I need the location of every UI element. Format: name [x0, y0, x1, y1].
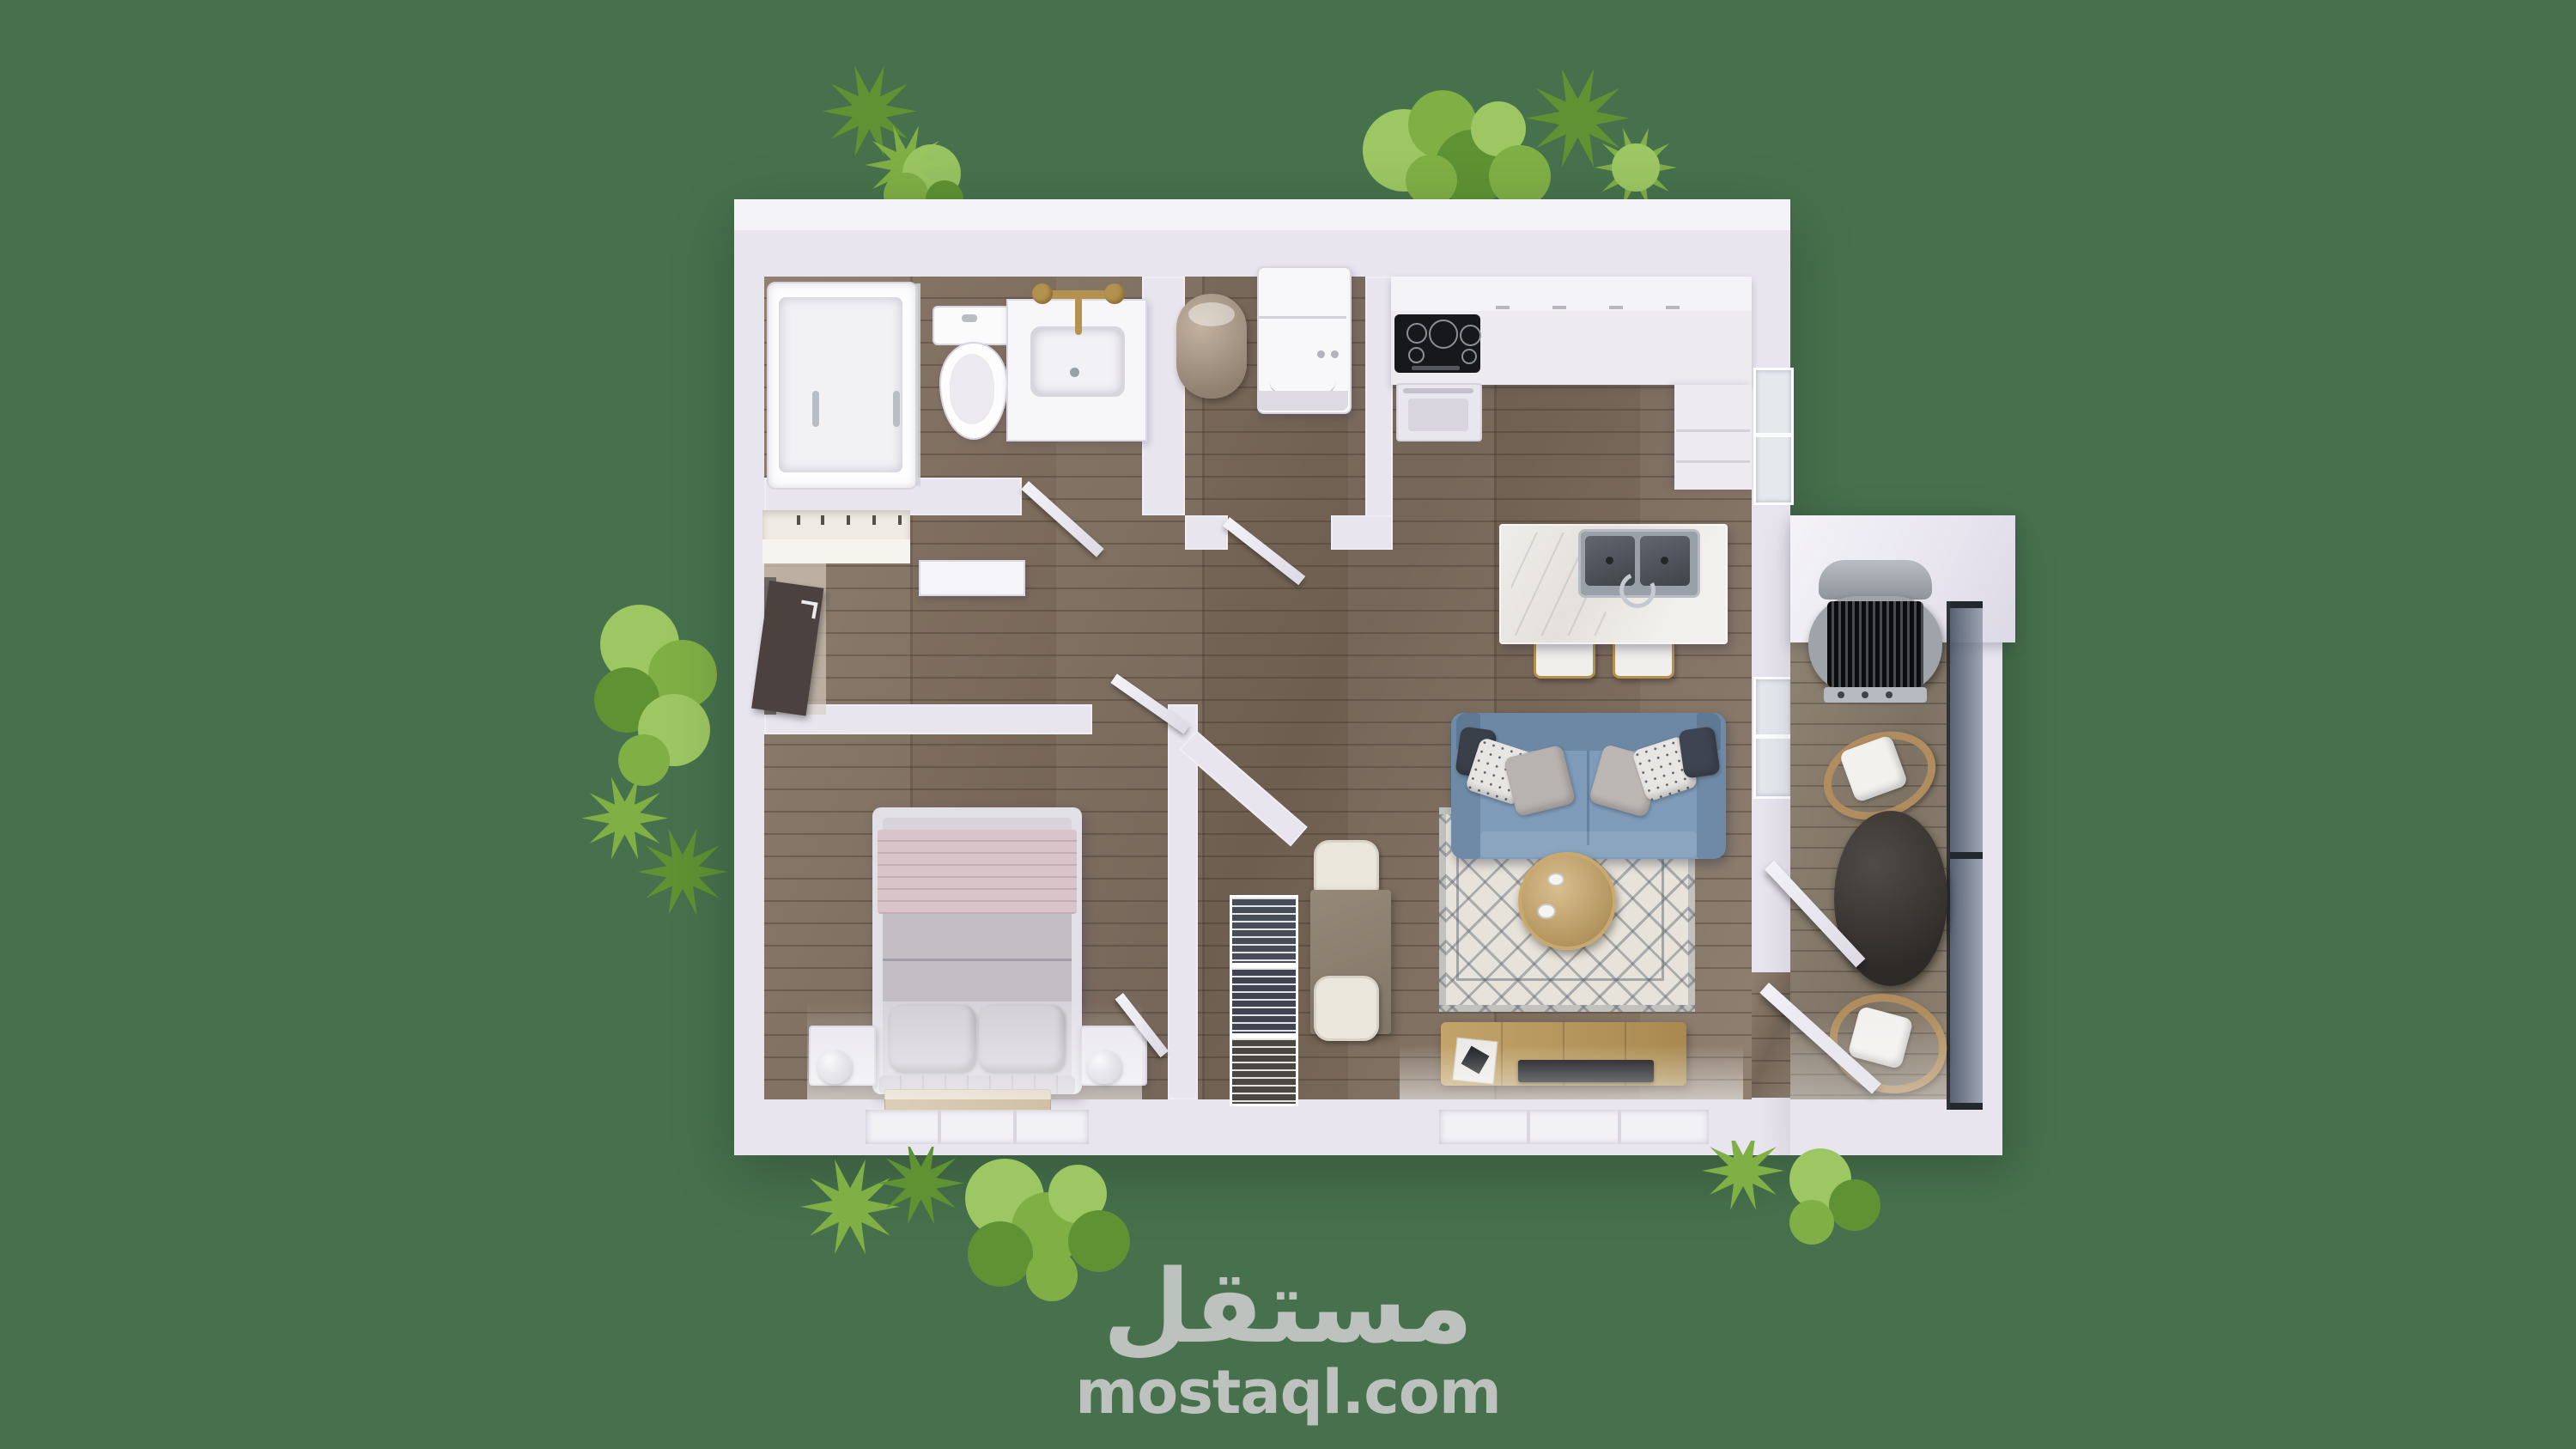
mostaql-logo-arabic: مستقل — [1103, 1256, 1473, 1357]
washer-knob-icon — [1317, 350, 1325, 358]
coat-hook-icon — [847, 515, 850, 525]
cabinet-handle-icon — [1666, 306, 1680, 309]
bbq-knob-icon — [1886, 691, 1893, 698]
wire-basket-unit — [1230, 895, 1298, 965]
window-mullion — [1013, 1110, 1017, 1144]
washer-base — [1257, 391, 1348, 411]
tv — [1518, 1060, 1654, 1082]
oven-handle — [1403, 388, 1473, 393]
sink-drain-icon — [1606, 557, 1613, 564]
cooktop-burner-icon — [1460, 325, 1481, 346]
toilet-tank — [933, 306, 1012, 345]
cabinet-handle-icon — [1496, 306, 1510, 309]
water-heater-top — [1188, 302, 1235, 326]
coat-hook-icon — [898, 515, 902, 525]
wire-basket-unit — [1230, 1036, 1298, 1106]
wall-top-cap — [734, 199, 1790, 230]
cup-icon — [1547, 873, 1564, 886]
kitchen-upper-cabinets — [1391, 277, 1752, 311]
dining-chair — [1314, 976, 1379, 1041]
bathtub-basin — [779, 297, 902, 472]
bbq-grate — [1827, 601, 1923, 687]
railing-post — [1950, 601, 1983, 608]
round-coffee-table — [1518, 852, 1616, 950]
watermark: مستقل mostaql.com — [1030, 1256, 1546, 1445]
window — [866, 1110, 1089, 1144]
kitchen-counter-right — [1674, 385, 1752, 490]
tree-icon-top-right — [1352, 47, 1687, 223]
window — [1753, 368, 1794, 505]
oven-glass — [1408, 399, 1468, 431]
coat-hook-icon — [821, 515, 824, 525]
coat-nook-bench — [762, 539, 910, 563]
blue-sofa — [1451, 713, 1726, 859]
railing-post — [1950, 1103, 1983, 1110]
gold-faucet-handle — [1104, 283, 1125, 304]
cooktop-burner-icon — [1408, 347, 1425, 363]
glass-railing — [1947, 601, 1983, 1110]
toilet-seat — [950, 354, 994, 424]
coat-hook-icon — [797, 515, 800, 525]
sphere-lamp — [817, 1050, 852, 1084]
door-swing-arrow-icon — [799, 600, 817, 618]
floor-plan-render: مستقل mostaql.com — [0, 0, 2576, 1449]
bed-pillow — [979, 1005, 1065, 1072]
sink-drain-icon — [1070, 368, 1079, 377]
window-mullion — [938, 1110, 941, 1144]
gold-faucet-handle — [1032, 283, 1053, 304]
bbq-control-panel — [1824, 687, 1927, 703]
cooktop-burner-icon — [1406, 323, 1427, 344]
hall-cabinet — [919, 560, 1025, 596]
window-mullion — [1756, 433, 1791, 437]
vanity-sink — [1030, 326, 1125, 397]
toilet-flush-button — [962, 314, 977, 322]
wall-laundry-south-right — [1331, 515, 1393, 550]
cabinet-handle-icon — [1609, 306, 1623, 309]
mostaql-url: mostaql.com — [1075, 1362, 1501, 1422]
bed-pillow — [890, 1005, 975, 1072]
bbq-grill-hood — [1819, 560, 1932, 600]
wall-bath-laundry — [1142, 277, 1185, 515]
cooktop-burner-icon — [1429, 320, 1458, 349]
tree-icon-left — [562, 593, 743, 928]
sphere-lamp — [1087, 1050, 1121, 1084]
railing-post — [1950, 852, 1983, 859]
cup-icon — [1537, 904, 1556, 919]
grab-bar-icon — [893, 391, 900, 427]
washer-top-seam — [1259, 316, 1346, 319]
wire-basket-unit — [1230, 965, 1298, 1036]
throw-pillow-dark — [1678, 726, 1720, 778]
grab-bar-icon — [812, 391, 819, 427]
bbq-knob-icon — [1838, 691, 1844, 698]
coat-hook-icon — [872, 515, 876, 525]
sheet-fold-line — [883, 959, 1072, 961]
sofa-front-edge — [1480, 831, 1697, 857]
tree-icon-bottom-right — [1700, 1141, 1889, 1261]
gold-faucet-spout — [1075, 297, 1082, 335]
window-mullion — [1618, 1110, 1621, 1144]
window-mullion — [1527, 1110, 1530, 1144]
wall-bedroom-closet — [1168, 704, 1198, 1099]
shower-glass-divider — [915, 283, 920, 486]
cooktop-controls — [1412, 366, 1460, 370]
wall-laundry-kitchen — [1365, 277, 1393, 550]
counter-seam — [1676, 460, 1750, 463]
washer-knob-icon — [1331, 350, 1339, 358]
bbq-knob-icon — [1862, 691, 1868, 698]
counter-seam — [1676, 429, 1750, 432]
throw-pillow-gray — [1504, 745, 1577, 818]
window-mullion — [1756, 734, 1791, 739]
window — [1439, 1110, 1709, 1144]
window — [1753, 677, 1794, 799]
wall-laundry-south-left — [1185, 515, 1228, 550]
bed-sheet — [883, 914, 1072, 1002]
cabinet-handle-icon — [1552, 306, 1566, 309]
double-bed — [872, 807, 1082, 1094]
cooktop-burner-icon — [1461, 349, 1477, 364]
pink-blanket — [878, 830, 1077, 914]
sink-drain-icon — [1661, 557, 1668, 564]
